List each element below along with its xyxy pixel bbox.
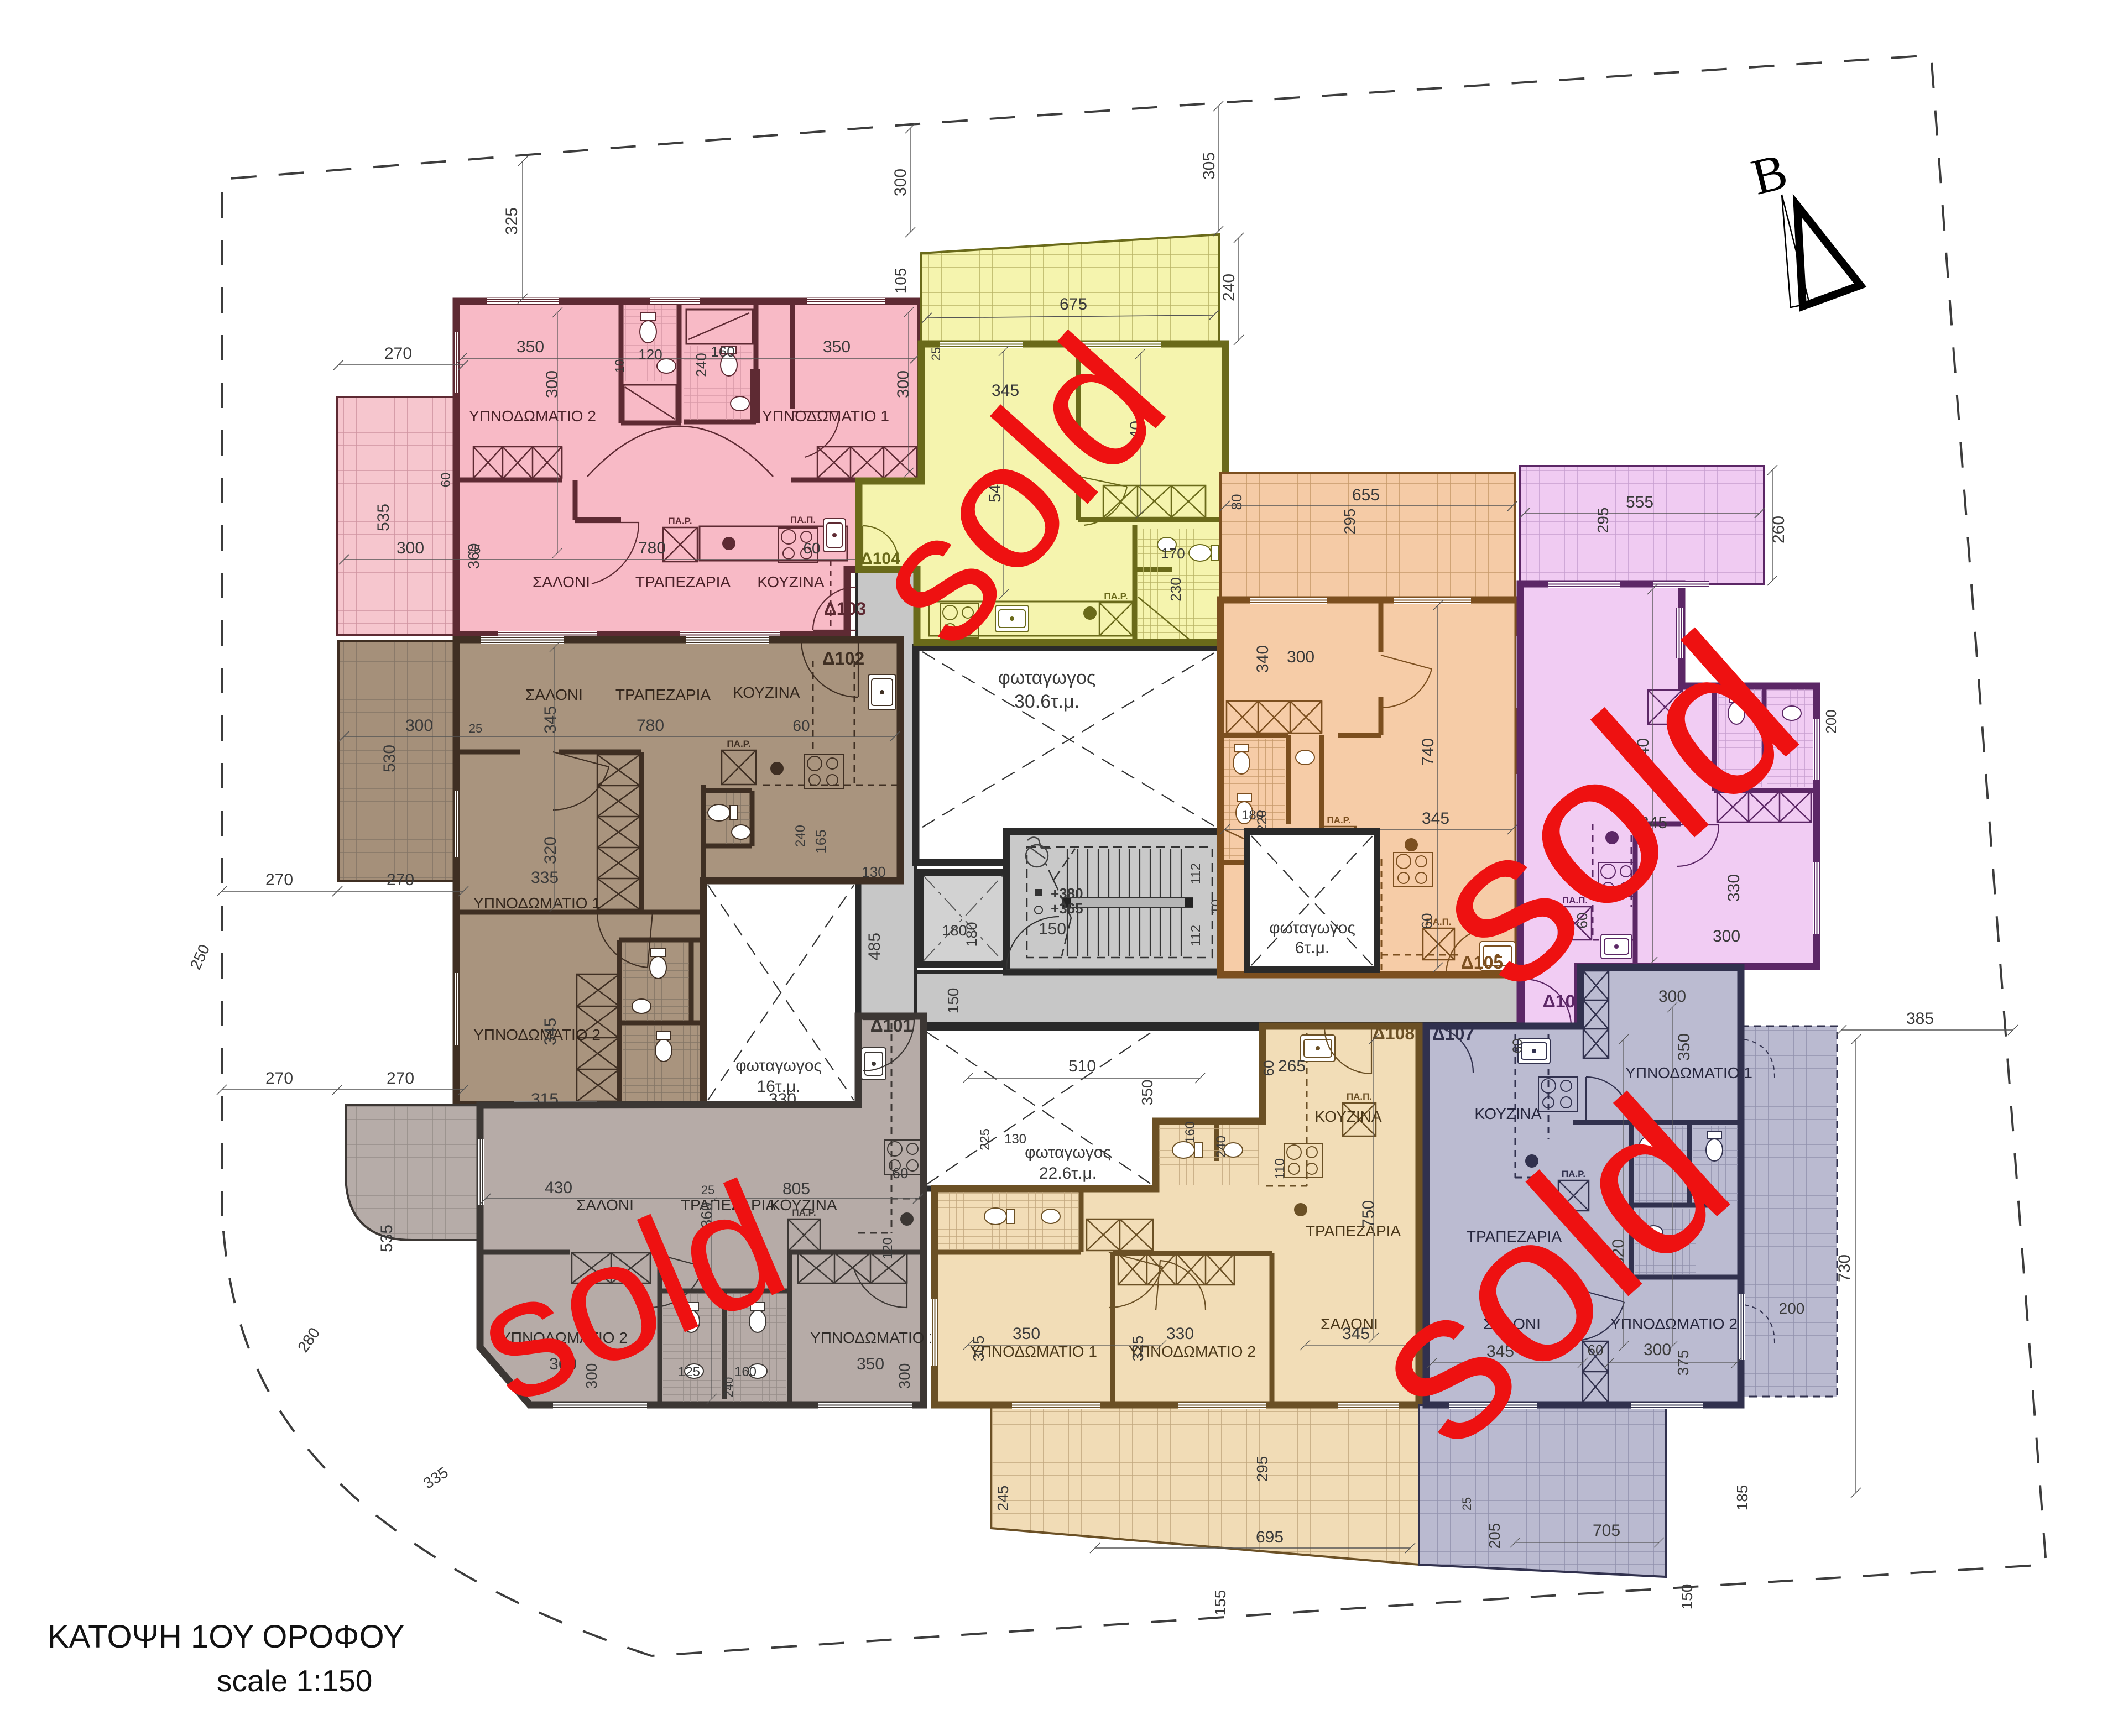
svg-text:330: 330	[1166, 1325, 1194, 1343]
svg-text:240: 240	[693, 353, 710, 377]
svg-text:150: 150	[1678, 1584, 1696, 1610]
svg-text:485: 485	[865, 933, 884, 960]
svg-text:780: 780	[637, 717, 664, 735]
svg-text:295: 295	[1341, 509, 1358, 535]
svg-text:φωταγωγος: φωταγωγος	[1269, 919, 1355, 937]
svg-text:130: 130	[862, 864, 885, 880]
svg-text:270: 270	[384, 344, 412, 363]
svg-text:300: 300	[397, 539, 424, 557]
svg-text:345: 345	[541, 1018, 560, 1045]
svg-text:φωταγωγος: φωταγωγος	[1025, 1143, 1111, 1162]
svg-text:530: 530	[380, 745, 399, 772]
svg-text:805: 805	[782, 1180, 810, 1198]
svg-text:ΥΠΝΟΔΩΜΑΤΙΟ 1: ΥΠΝΟΔΩΜΑΤΙΟ 1	[810, 1329, 937, 1346]
svg-text:270: 270	[387, 1069, 414, 1087]
svg-text:510: 510	[1068, 1057, 1096, 1075]
svg-text:ΠΑ.Ρ.: ΠΑ.Ρ.	[727, 739, 750, 749]
svg-text:120: 120	[638, 346, 662, 363]
svg-text:φωταγωγος: φωταγωγος	[998, 667, 1096, 688]
svg-text:350: 350	[1013, 1325, 1040, 1343]
svg-text:325: 325	[503, 207, 521, 235]
svg-text:160: 160	[734, 1364, 757, 1379]
svg-text:240: 240	[722, 1377, 735, 1398]
svg-text:ΥΠΝΟΔΩΜΑΤΙΟ 1: ΥΠΝΟΔΩΜΑΤΙΟ 1	[1625, 1064, 1752, 1081]
svg-text:60: 60	[803, 540, 820, 557]
svg-text:Δ103: Δ103	[824, 599, 866, 619]
svg-text:10: 10	[613, 359, 627, 373]
svg-text:Δ102: Δ102	[822, 649, 864, 668]
svg-text:200: 200	[1779, 1300, 1805, 1317]
svg-text:ΚΑΤΟΨΗ 1ΟΥ ΟΡΟΦΟΥ: ΚΑΤΟΨΗ 1ΟΥ ΟΡΟΦΟΥ	[48, 1619, 404, 1655]
svg-text:300: 300	[896, 1363, 913, 1389]
svg-text:ΥΠΝΟΔΩΜΑΤΙΟ 1: ΥΠΝΟΔΩΜΑΤΙΟ 1	[762, 407, 889, 425]
svg-text:150: 150	[945, 988, 962, 1014]
svg-text:350: 350	[823, 338, 851, 356]
svg-text:300: 300	[1658, 987, 1686, 1006]
svg-text:270: 270	[265, 871, 293, 889]
svg-text:scale 1:150: scale 1:150	[217, 1664, 372, 1698]
svg-text:ΚΟΥΖΙΝΑ: ΚΟΥΖΙΝΑ	[757, 573, 824, 590]
svg-text:225: 225	[978, 1128, 993, 1151]
svg-text:320: 320	[541, 836, 560, 864]
svg-text:ΠΑ.Π.: ΠΑ.Π.	[1347, 1091, 1372, 1102]
svg-text:160: 160	[711, 343, 734, 360]
svg-text:+365: +365	[1051, 900, 1083, 917]
svg-text:305: 305	[970, 1336, 987, 1362]
svg-text:ΠΑ.Ρ.: ΠΑ.Ρ.	[668, 516, 692, 526]
svg-text:240: 240	[1220, 274, 1238, 301]
svg-text:ΠΑ.Π.: ΠΑ.Π.	[790, 515, 816, 525]
svg-text:205: 205	[1486, 1523, 1503, 1549]
svg-text:Δ108: Δ108	[1373, 1023, 1415, 1043]
svg-text:ΥΠΝΟΔΩΜΑΤΙΟ 2: ΥΠΝΟΔΩΜΑΤΙΟ 2	[473, 1026, 601, 1043]
svg-text:535: 535	[378, 1225, 396, 1252]
svg-text:60: 60	[1510, 1039, 1525, 1054]
svg-text:110: 110	[1272, 1158, 1287, 1179]
svg-text:170: 170	[1161, 545, 1185, 562]
svg-text:300: 300	[1644, 1341, 1671, 1359]
svg-text:270: 270	[387, 871, 414, 889]
svg-text:325: 325	[1129, 1336, 1146, 1362]
svg-text:112: 112	[1188, 925, 1203, 946]
svg-text:22.6τ.μ.: 22.6τ.μ.	[1039, 1164, 1097, 1183]
svg-text:155: 155	[1212, 1590, 1229, 1616]
svg-text:ΚΟΥΖΙΝΑ: ΚΟΥΖΙΝΑ	[733, 684, 800, 701]
svg-text:240: 240	[793, 825, 808, 847]
svg-text:655: 655	[1352, 486, 1380, 504]
svg-text:ΥΠΝΟΔΩΜΑΤΙΟ 1: ΥΠΝΟΔΩΜΑΤΙΟ 1	[473, 895, 601, 912]
svg-text:ΣΑΛΟΝΙ: ΣΑΛΟΝΙ	[525, 686, 583, 703]
svg-text:200: 200	[1823, 709, 1839, 733]
svg-text:60: 60	[893, 1165, 909, 1181]
svg-text:535: 535	[374, 504, 393, 531]
svg-text:25: 25	[467, 542, 481, 556]
svg-text:Δ107: Δ107	[1432, 1024, 1474, 1044]
svg-text:ΣΑΛΟΝΙ: ΣΑΛΟΝΙ	[533, 573, 590, 590]
svg-text:345: 345	[541, 706, 560, 734]
svg-text:265: 265	[1278, 1057, 1306, 1075]
svg-text:780: 780	[638, 539, 666, 557]
svg-text:185: 185	[1734, 1485, 1751, 1511]
svg-text:130: 130	[1004, 1132, 1026, 1147]
svg-text:350: 350	[517, 338, 544, 356]
svg-text:120: 120	[880, 1237, 895, 1259]
svg-text:ΚΟΥΖΙΝΑ: ΚΟΥΖΙΝΑ	[1474, 1105, 1541, 1122]
svg-text:+380: +380	[1051, 885, 1083, 902]
svg-text:80: 80	[1228, 494, 1245, 510]
svg-text:300: 300	[1287, 648, 1314, 666]
svg-text:430: 430	[545, 1179, 572, 1197]
svg-text:330: 330	[1725, 874, 1743, 902]
svg-text:ΤΡΑΠΕΖΑΡΙΑ: ΤΡΑΠΕΖΑΡΙΑ	[1306, 1222, 1401, 1240]
svg-text:165: 165	[812, 829, 829, 853]
svg-text:180: 180	[963, 922, 980, 947]
svg-text:240: 240	[1214, 1136, 1229, 1158]
svg-text:160: 160	[1183, 1121, 1198, 1143]
svg-text:25: 25	[929, 347, 943, 360]
svg-text:340: 340	[1254, 645, 1272, 673]
svg-text:705: 705	[1593, 1521, 1620, 1540]
svg-text:350: 350	[1675, 1033, 1693, 1061]
svg-text:ΤΡΑΠΕΖΑΡΙΑ: ΤΡΑΠΕΖΑΡΙΑ	[615, 686, 711, 703]
svg-text:ΤΡΑΠΕΖΑΡΙΑ: ΤΡΑΠΕΖΑΡΙΑ	[635, 573, 731, 590]
svg-text:350: 350	[857, 1355, 884, 1373]
svg-text:ΥΠΝΟΔΩΜΑΤΙΟ 1: ΥΠΝΟΔΩΜΑΤΙΟ 1	[970, 1343, 1097, 1360]
svg-text:6τ.μ.: 6τ.μ.	[1295, 939, 1330, 957]
svg-text:60: 60	[1418, 913, 1435, 929]
svg-text:ΠΑ.Ρ.: ΠΑ.Ρ.	[1327, 815, 1350, 825]
svg-text:730: 730	[1835, 1254, 1854, 1282]
svg-text:335: 335	[531, 869, 559, 887]
svg-text:60: 60	[1260, 1060, 1277, 1076]
svg-text:295: 295	[1254, 1456, 1271, 1482]
svg-text:300: 300	[543, 370, 561, 398]
svg-text:300: 300	[891, 169, 910, 196]
svg-text:φωταγωγος: φωταγωγος	[735, 1057, 822, 1075]
svg-text:305: 305	[1200, 152, 1218, 180]
svg-text:60: 60	[792, 717, 810, 734]
svg-text:385: 385	[1906, 1010, 1934, 1028]
svg-text:60: 60	[439, 473, 453, 488]
svg-text:Δ101: Δ101	[870, 1016, 912, 1036]
svg-text:230: 230	[1167, 577, 1184, 601]
svg-text:300: 300	[1713, 927, 1740, 945]
svg-text:750: 750	[1359, 1200, 1378, 1228]
svg-text:ΠΑ.Ρ.: ΠΑ.Ρ.	[1104, 591, 1128, 602]
svg-text:300: 300	[405, 717, 433, 735]
svg-text:300: 300	[894, 370, 912, 398]
svg-text:295: 295	[1594, 508, 1611, 534]
svg-text:105: 105	[892, 268, 909, 294]
svg-text:ΥΠΝΟΔΩΜΑΤΙΟ 2: ΥΠΝΟΔΩΜΑΤΙΟ 2	[469, 407, 596, 425]
svg-text:245: 245	[994, 1486, 1011, 1512]
svg-text:695: 695	[1256, 1528, 1284, 1546]
svg-text:350: 350	[1139, 1080, 1156, 1106]
svg-text:740: 740	[1419, 738, 1437, 766]
svg-text:25: 25	[469, 721, 482, 735]
svg-text:112: 112	[1188, 863, 1203, 884]
svg-text:ΚΟΥΖΙΝΑ: ΚΟΥΖΙΝΑ	[1314, 1108, 1381, 1125]
svg-text:270: 270	[265, 1069, 293, 1087]
svg-text:150: 150	[1039, 920, 1066, 938]
svg-text:25: 25	[1460, 1497, 1474, 1510]
svg-text:30.6τ.μ.: 30.6τ.μ.	[1014, 691, 1079, 712]
svg-text:ΥΠΝΟΔΩΜΑΤΙΟ 2: ΥΠΝΟΔΩΜΑΤΙΟ 2	[1129, 1343, 1256, 1360]
svg-text:555: 555	[1626, 493, 1653, 511]
